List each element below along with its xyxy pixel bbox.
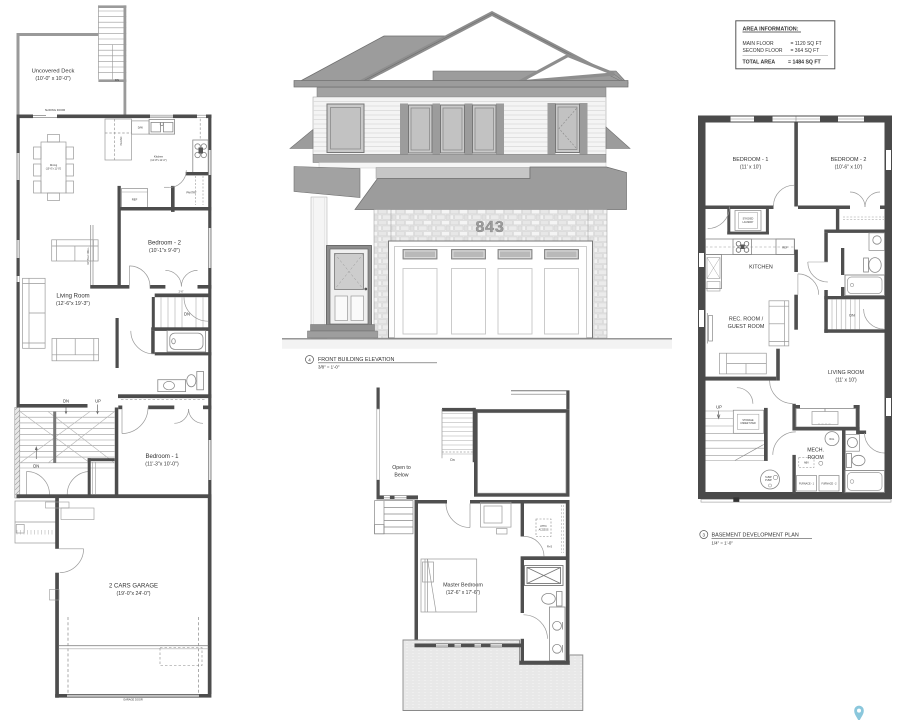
svg-text:PANTRY: PANTRY — [186, 191, 197, 195]
svg-text:W.H.: W.H. — [829, 437, 835, 441]
svg-text:FRONT BUILDING ELEVATION: FRONT BUILDING ELEVATION — [318, 357, 394, 363]
svg-text:(10'-6" x 10'): (10'-6" x 10') — [835, 165, 863, 171]
svg-text:BASEMENT DEVELOPMENT PLAN: BASEMENT DEVELOPMENT PLAN — [712, 533, 799, 539]
svg-text:MAIN FLOOR: MAIN FLOOR — [743, 41, 775, 47]
svg-text:GUEST ROOM: GUEST ROOM — [728, 324, 765, 330]
svg-text:(11' x 10'): (11' x 10') — [740, 165, 762, 171]
svg-text:Below: Below — [394, 473, 408, 479]
svg-text:Bedroom - 2: Bedroom - 2 — [148, 241, 182, 247]
svg-text:(12'-6" x 17'-6"): (12'-6" x 17'-6") — [446, 590, 480, 596]
svg-text:1/4" = 1'-0": 1/4" = 1'-0" — [712, 541, 734, 546]
svg-text:= 1120 SQ FT: = 1120 SQ FT — [791, 41, 822, 47]
svg-text:DN: DN — [849, 314, 855, 318]
svg-text:3/8" = 1'-0": 3/8" = 1'-0" — [318, 365, 340, 370]
svg-text:Open to: Open to — [392, 465, 411, 471]
svg-text:DN: DN — [115, 78, 119, 82]
svg-text:REC. ROOM /: REC. ROOM / — [729, 317, 764, 323]
svg-text:BEDROOM - 2: BEDROOM - 2 — [831, 157, 867, 163]
svg-text:Living Room: Living Room — [56, 294, 89, 300]
svg-text:UP: UP — [95, 399, 101, 404]
svg-text:= 364 SQ FT: = 364 SQ FT — [791, 48, 820, 54]
svg-text:ISLAND: ISLAND — [120, 136, 123, 145]
svg-text:SLIDING DOOR: SLIDING DOOR — [45, 108, 65, 112]
svg-text:UNDER STAIR: UNDER STAIR — [740, 422, 756, 425]
svg-text:R+S: R+S — [547, 545, 552, 549]
svg-text:D/W: D/W — [138, 126, 144, 130]
svg-text:(10'-1"x 9'-0"): (10'-1"x 9'-0") — [149, 248, 180, 254]
svg-text:STORAGE: STORAGE — [742, 419, 754, 422]
svg-text:LIVING ROOM: LIVING ROOM — [828, 370, 864, 376]
svg-text:DN: DN — [63, 399, 69, 404]
svg-text:FURNACE - 2: FURNACE - 2 — [821, 483, 837, 486]
svg-text:Dn: Dn — [450, 458, 454, 462]
svg-text:(12'-8"x 11'-0"): (12'-8"x 11'-0") — [150, 159, 166, 162]
svg-text:REF: REF — [132, 198, 138, 202]
svg-text:Uncovered Deck: Uncovered Deck — [32, 69, 75, 75]
svg-text:(10'-0" x 10'-0"): (10'-0" x 10'-0") — [35, 76, 71, 82]
svg-text:(10'-0"x 11'-0"): (10'-0"x 11'-0") — [46, 168, 62, 171]
svg-text:Master Bedroom: Master Bedroom — [443, 583, 483, 589]
svg-text:(11'-3"x 10'-0"): (11'-3"x 10'-0") — [145, 462, 179, 468]
svg-text:STACKED: STACKED — [743, 218, 754, 221]
svg-text:(12'-6"x 19'-3"): (12'-6"x 19'-3") — [56, 301, 90, 307]
svg-text:SECOND FLOOR: SECOND FLOOR — [743, 48, 783, 54]
svg-text:AREA INFORMATION:: AREA INFORMATION: — [743, 27, 799, 33]
svg-text:2 CARS GARAGE: 2 CARS GARAGE — [109, 584, 158, 590]
svg-text:UP: UP — [716, 405, 722, 410]
svg-text:42" HALF WALL: 42" HALF WALL — [87, 247, 90, 265]
svg-text:Dining: Dining — [50, 163, 58, 167]
svg-text:ABV: ABV — [804, 462, 809, 465]
svg-text:TOTAL AREA: TOTAL AREA — [743, 60, 776, 66]
svg-text:DN: DN — [33, 464, 39, 469]
svg-text:MECH.: MECH. — [807, 448, 824, 454]
svg-text:= 1484 SQ FT: = 1484 SQ FT — [788, 60, 822, 66]
svg-text:(11' x 10'): (11' x 10') — [835, 378, 857, 384]
svg-text:BEDROOM - 1: BEDROOM - 1 — [733, 157, 769, 163]
svg-text:KITCHEN: KITCHEN — [749, 265, 773, 271]
svg-text:843: 843 — [475, 219, 504, 236]
svg-text:REF: REF — [782, 246, 788, 250]
svg-text:(19'-0"x 24'-0"): (19'-0"x 24'-0") — [117, 591, 151, 597]
svg-text:PUMP: PUMP — [765, 480, 772, 482]
svg-text:SUMP: SUMP — [765, 477, 772, 479]
svg-text:ROOM: ROOM — [808, 455, 824, 461]
svg-text:Bedroom - 1: Bedroom - 1 — [145, 454, 179, 460]
svg-text:LAUNDRY: LAUNDRY — [743, 221, 754, 224]
svg-text:ACCESS: ACCESS — [539, 529, 549, 532]
svg-text:GARAGE DOOR: GARAGE DOOR — [123, 698, 143, 702]
svg-text:2'-6": 2'-6" — [179, 290, 184, 293]
svg-text:FURNACE - 1: FURNACE - 1 — [799, 483, 815, 486]
svg-text:Kitchen: Kitchen — [154, 155, 164, 159]
